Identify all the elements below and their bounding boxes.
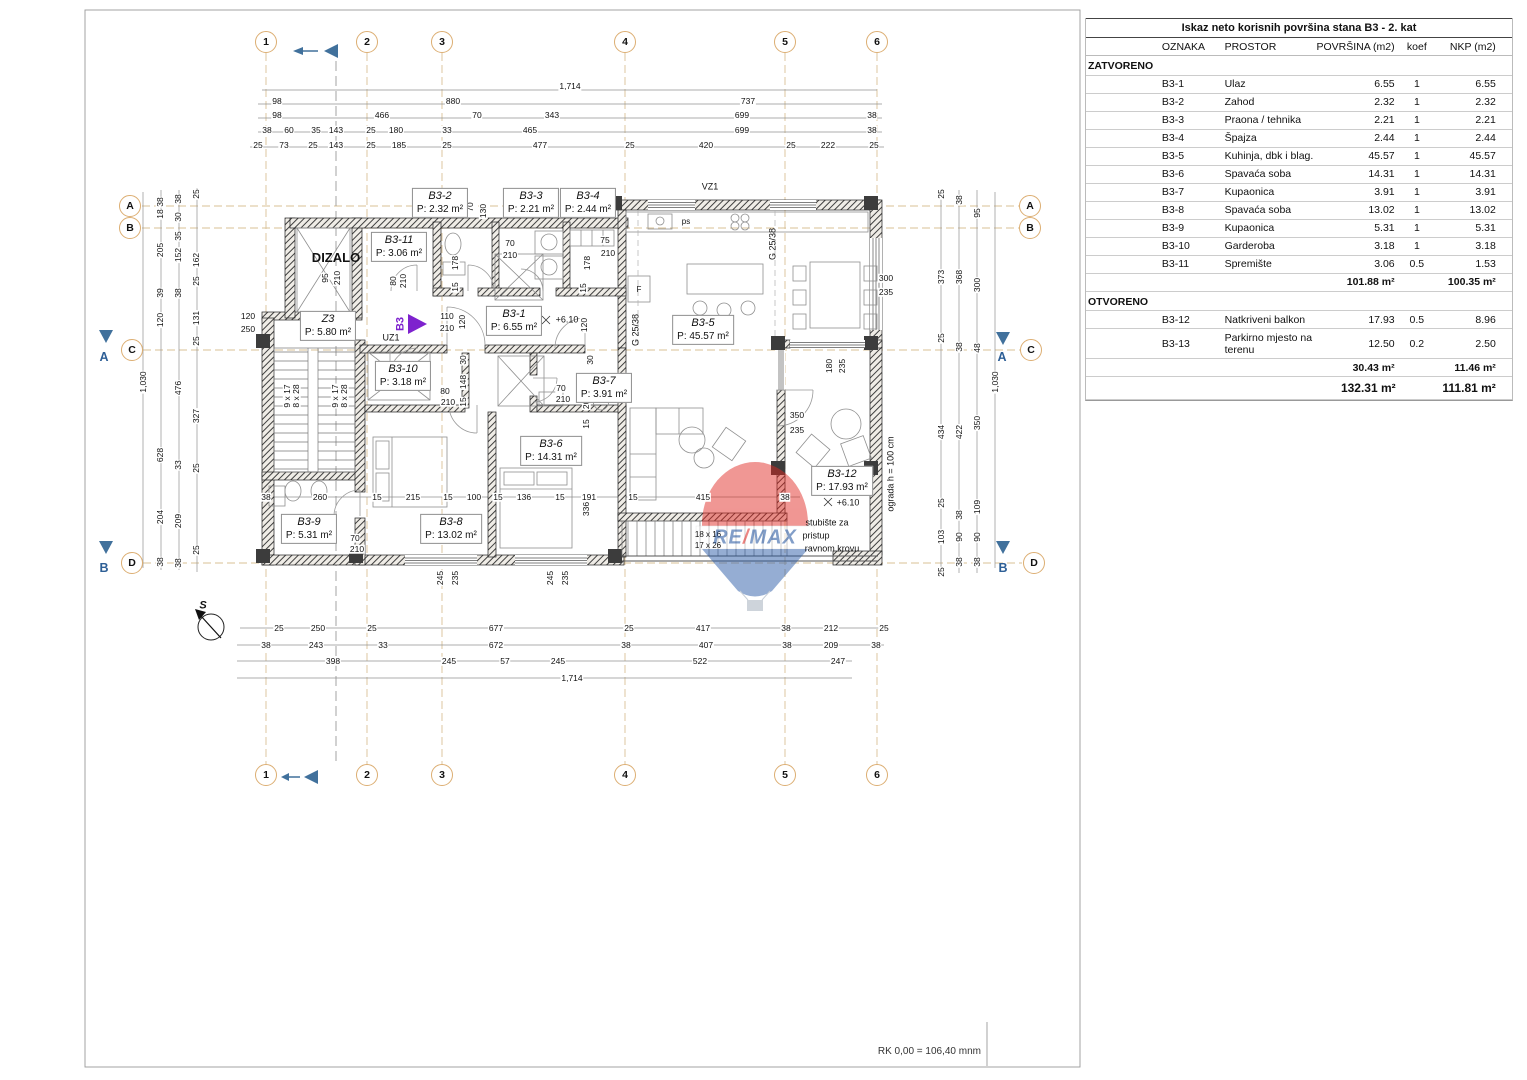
dim-label: 222 — [820, 141, 836, 150]
cell: 6.55 — [1339, 75, 1397, 93]
cell — [1498, 201, 1512, 219]
dim-label: 75 — [599, 236, 610, 245]
dim-label: 162 — [192, 252, 201, 268]
cell: B3-11 — [1160, 255, 1223, 273]
annotation-uz1: UZ1 — [382, 334, 399, 343]
dim-label: 628 — [156, 447, 165, 463]
cell — [1086, 147, 1160, 165]
cell: 1 — [1397, 75, 1437, 93]
room-label-dizalo: DIZALO — [308, 249, 364, 267]
table-row: B3-13Parkirno mjesto na terenu12.500.22.… — [1086, 329, 1512, 359]
table-row: B3-2Zahod2.3212.32 — [1086, 93, 1512, 111]
header-spacer-end — [1498, 38, 1512, 56]
dim-label: 38 — [260, 493, 271, 502]
grid-bubble-A: A — [119, 195, 141, 217]
annotation-b: B — [99, 562, 108, 575]
cell: 3.18 — [1339, 237, 1397, 255]
dim-label: 131 — [192, 310, 201, 326]
dim-label: 8 x 28 — [292, 383, 301, 408]
dim-label: 15 — [442, 493, 453, 502]
cell — [1086, 255, 1160, 273]
dim-label: 38 — [174, 287, 183, 298]
dim-label: 178 — [583, 255, 592, 271]
grid-bubble-D: D — [1023, 552, 1045, 574]
cell: 132.31 m² — [1339, 377, 1397, 400]
dim-label: 120 — [580, 317, 589, 333]
room-area: P: 3.06 m² — [376, 248, 422, 261]
dim-label: 398 — [325, 657, 341, 666]
cell: 14.31 — [1437, 165, 1498, 183]
cell: Kuhinja, dbk i blag. — [1223, 147, 1339, 165]
cell: 8.96 — [1437, 311, 1498, 329]
room-area: P: 45.57 m² — [677, 331, 729, 344]
room-area: P: 3.18 m² — [380, 377, 426, 390]
dim-label: 235 — [561, 570, 570, 586]
section-row-otvoreno: OTVORENO — [1086, 291, 1512, 311]
dim-label: 300 — [973, 277, 982, 293]
table-row: B3-6Spavaća soba14.31114.31 — [1086, 165, 1512, 183]
dim-label: 38 — [156, 196, 165, 207]
dim-label: 417 — [695, 624, 711, 633]
cell: 1 — [1397, 147, 1437, 165]
area-table-grid: OZNAKA PROSTORPOVRŠINA (m2) koef NKP (m2… — [1086, 38, 1512, 400]
dim-label: 699 — [734, 111, 750, 120]
cell — [1086, 93, 1160, 111]
cell — [1498, 311, 1512, 329]
dim-label: 18 — [156, 208, 165, 219]
dim-label: 38 — [260, 641, 271, 650]
cell: 2.50 — [1437, 329, 1498, 359]
dim-label: 260 — [312, 493, 328, 502]
cell — [1498, 147, 1512, 165]
cell: OTVORENO — [1086, 291, 1223, 311]
cell: 5.31 — [1339, 219, 1397, 237]
dim-label: 15 — [492, 493, 503, 502]
dim-label: 90 — [973, 531, 982, 542]
cell: 3.18 — [1437, 237, 1498, 255]
cell — [1086, 165, 1160, 183]
dim-label: 209 — [174, 513, 183, 529]
cell — [1223, 291, 1512, 311]
subtotal-row: 101.88 m²100.35 m² — [1086, 273, 1512, 291]
dim-label: 25 — [623, 624, 634, 633]
room-area: P: 13.02 m² — [425, 530, 477, 543]
col-nkp: NKP (m2) — [1437, 38, 1498, 56]
room-name: B3-6 — [525, 438, 577, 452]
room-label-b3-10: B3-10P: 3.18 m² — [375, 361, 431, 391]
dim-label: 15 — [554, 493, 565, 502]
dim-label: 677 — [488, 624, 504, 633]
dim-label: 204 — [156, 509, 165, 525]
cell — [1498, 183, 1512, 201]
cell: 12.50 — [1339, 329, 1397, 359]
area-table-header-row: OZNAKA PROSTORPOVRŠINA (m2) koef NKP (m2… — [1086, 38, 1512, 56]
room-name: B3-1 — [491, 308, 537, 322]
dim-label: 8 x 28 — [340, 383, 349, 408]
dim-label: 185 — [391, 141, 407, 150]
room-name: Z3 — [305, 313, 351, 327]
dim-label: 25 — [192, 275, 201, 286]
dim-label: 25 — [307, 141, 318, 150]
grid-bubble-4: 4 — [614, 31, 636, 53]
cell: Zahod — [1223, 93, 1339, 111]
cell: Spavaća soba — [1223, 201, 1339, 219]
annotation-pristup: pristup — [802, 532, 829, 541]
dim-label: 210 — [333, 270, 342, 286]
dim-label: 30 — [586, 354, 595, 365]
grid-bubble-2: 2 — [356, 764, 378, 786]
room-area: P: 17.93 m² — [816, 482, 868, 495]
dim-label: 327 — [192, 408, 201, 424]
cell — [1498, 255, 1512, 273]
dim-label: 120 — [240, 312, 256, 321]
cell: Ulaz — [1223, 75, 1339, 93]
grid-bubble-1: 1 — [255, 764, 277, 786]
dim-label: 120 — [156, 312, 165, 328]
cell: 3.06 — [1339, 255, 1397, 273]
room-area: P: 2.44 m² — [565, 204, 611, 217]
dim-label: 210 — [555, 395, 571, 404]
annotation-stubi-te-za: stubište za — [805, 519, 848, 528]
grid-bubble-6: 6 — [866, 764, 888, 786]
grid-bubble-D: D — [121, 552, 143, 574]
cell — [1498, 377, 1512, 400]
dim-label: 109 — [973, 499, 982, 515]
dim-label: 250 — [310, 624, 326, 633]
cell — [1498, 329, 1512, 359]
dim-label: 180 — [388, 126, 404, 135]
room-name: B3-4 — [565, 190, 611, 204]
dim-label: 25 — [937, 188, 946, 199]
cell: 0.2 — [1397, 329, 1437, 359]
dim-label: 205 — [156, 242, 165, 258]
cell — [1086, 201, 1160, 219]
area-table-title: Iskaz neto korisnih površina stana B3 - … — [1086, 18, 1512, 38]
grid-bubble-5: 5 — [774, 31, 796, 53]
cell: Spavaća soba — [1223, 165, 1339, 183]
remax-watermark-text: RE/MAX — [713, 527, 797, 550]
dim-label: 15 — [451, 281, 460, 292]
dim-label: 70 — [349, 534, 360, 543]
cell — [1086, 311, 1160, 329]
room-name: B3-12 — [816, 468, 868, 482]
dim-label: 38 — [955, 194, 964, 205]
cell: 3.91 — [1339, 183, 1397, 201]
dim-label: 434 — [937, 424, 946, 440]
dim-label: 25 — [273, 624, 284, 633]
room-name: B3-3 — [508, 190, 554, 204]
dim-label: 38 — [174, 193, 183, 204]
table-row: B3-10Garderoba3.1813.18 — [1086, 237, 1512, 255]
cell — [1086, 129, 1160, 147]
cell: Parkirno mjesto na terenu — [1223, 329, 1339, 359]
dim-label: 245 — [546, 570, 555, 586]
dim-label: 25 — [441, 141, 452, 150]
table-row: B3-9Kupaonica5.3115.31 — [1086, 219, 1512, 237]
cell: Kupaonica — [1223, 219, 1339, 237]
dim-label: 1,030 — [139, 370, 148, 393]
dim-label: 415 — [695, 493, 711, 502]
dim-label: 95 — [321, 272, 330, 283]
annotation-b3: B3 — [396, 317, 407, 331]
cell — [1086, 183, 1160, 201]
cell: 45.57 — [1339, 147, 1397, 165]
dim-label: 39 — [156, 287, 165, 298]
cell: 1 — [1397, 237, 1437, 255]
annotation-g-25-38: G 25/38 — [632, 314, 641, 346]
cell: B3-7 — [1160, 183, 1223, 201]
table-row: B3-4Špajza2.4412.44 — [1086, 129, 1512, 147]
cell — [1498, 273, 1512, 291]
dim-label: 15 — [579, 282, 588, 293]
dim-label: 247 — [830, 657, 846, 666]
room-label-b3-2: B3-2P: 2.32 m² — [412, 188, 468, 218]
grid-bubble-3: 3 — [431, 764, 453, 786]
cell: Natkriveni balkon — [1223, 311, 1339, 329]
cell — [1498, 359, 1512, 377]
level-reference-note: RK 0,00 = 106,40 mnm — [866, 1046, 981, 1057]
dim-label: 143 — [328, 141, 344, 150]
annotation-ravnom-krovu: ravnom krovu — [805, 545, 860, 554]
dim-label: 25 — [937, 497, 946, 508]
cell: 1.53 — [1437, 255, 1498, 273]
dim-label: 38 — [955, 341, 964, 352]
dim-label: 300 — [878, 274, 894, 283]
header-spacer — [1086, 38, 1160, 56]
grid-bubble-3: 3 — [431, 31, 453, 53]
dim-label: 210 — [399, 273, 408, 289]
dim-label: 38 — [261, 126, 272, 135]
dim-label: 1,030 — [991, 370, 1000, 393]
dim-label: 38 — [973, 556, 982, 567]
dim-label: 1,714 — [558, 82, 581, 91]
cell: B3-3 — [1160, 111, 1223, 129]
total-row: 132.31 m²111.81 m² — [1086, 377, 1512, 400]
dim-label: 25 — [252, 141, 263, 150]
dim-label: 15 — [582, 418, 591, 429]
dim-label: 120 — [458, 314, 467, 330]
dim-label: 98 — [271, 111, 282, 120]
cell — [1498, 93, 1512, 111]
dim-label: 209 — [823, 641, 839, 650]
dim-label: 350 — [973, 415, 982, 431]
cell: 1 — [1397, 165, 1437, 183]
annotation-a: A — [99, 351, 108, 364]
area-table: Iskaz neto korisnih površina stana B3 - … — [1085, 18, 1513, 401]
dim-label: 343 — [544, 111, 560, 120]
cell — [1498, 237, 1512, 255]
dim-label: 243 — [308, 641, 324, 650]
dim-label: 25 — [365, 126, 376, 135]
dim-label: 210 — [502, 251, 518, 260]
room-name: B3-8 — [425, 516, 477, 530]
dim-label: 212 — [823, 624, 839, 633]
grid-bubble-A: A — [1019, 195, 1041, 217]
cell — [1498, 129, 1512, 147]
dim-label: 25 — [192, 335, 201, 346]
dim-label: 245 — [441, 657, 457, 666]
room-label-b3-8: B3-8P: 13.02 m² — [420, 514, 482, 544]
cell: 2.44 — [1339, 129, 1397, 147]
dim-label: 25 — [868, 141, 879, 150]
col-prostor: PROSTOR — [1225, 41, 1277, 53]
dim-label: 368 — [955, 269, 964, 285]
dim-label: 25 — [624, 141, 635, 150]
cell: B3-8 — [1160, 201, 1223, 219]
dim-label: 235 — [789, 426, 805, 435]
dim-label: 33 — [441, 126, 452, 135]
dim-label: 73 — [278, 141, 289, 150]
dim-label: 210 — [600, 249, 616, 258]
annotation-f: F — [637, 286, 642, 294]
dim-label: 103 — [937, 529, 946, 545]
dim-label: 210 — [439, 324, 455, 333]
cell — [1397, 273, 1437, 291]
cell: 13.02 — [1339, 201, 1397, 219]
room-name: B3-7 — [581, 375, 627, 389]
cell: 2.21 — [1437, 111, 1498, 129]
cell: 1 — [1397, 93, 1437, 111]
cell: B3-12 — [1160, 311, 1223, 329]
cell: B3-10 — [1160, 237, 1223, 255]
cell — [1086, 359, 1339, 377]
dim-label: 130 — [479, 203, 488, 219]
cell: B3-9 — [1160, 219, 1223, 237]
dim-label: 180 — [825, 358, 834, 374]
cell — [1498, 165, 1512, 183]
dim-label: 152 — [174, 247, 183, 263]
cell: 30.43 m² — [1339, 359, 1397, 377]
dim-label: 699 — [734, 126, 750, 135]
dim-label: 70 — [555, 384, 566, 393]
cell: 111.81 m² — [1437, 377, 1498, 400]
annotation-b: B — [998, 562, 1007, 575]
dim-label: 672 — [488, 641, 504, 650]
cell: 5.31 — [1437, 219, 1498, 237]
cell — [1498, 111, 1512, 129]
dim-label: 38 — [780, 624, 791, 633]
dim-label: 245 — [436, 570, 445, 586]
grid-bubble-C: C — [1020, 339, 1042, 361]
watermark-max: MAX — [749, 527, 796, 549]
room-label-b3-7: B3-7P: 3.91 m² — [576, 373, 632, 403]
floor-plan-sheet: 123456123456ABCDABCD1,714988807379846670… — [0, 0, 1527, 1080]
annotation--6-10: +6.10 — [837, 499, 860, 508]
annotation-vz1: VZ1 — [702, 183, 719, 192]
dim-label: 35 — [174, 230, 183, 241]
table-row: B3-3Praona / tehnika2.2112.21 — [1086, 111, 1512, 129]
section-row-zatvoreno: ZATVORENO — [1086, 56, 1512, 76]
annotation-g-25-38: G 25/38 — [769, 228, 778, 260]
cell: Praona / tehnika — [1223, 111, 1339, 129]
dim-label: 1,714 — [560, 674, 583, 683]
dim-label: 210 — [349, 545, 365, 554]
cell: B3-4 — [1160, 129, 1223, 147]
annotation-ograda-h-100-cm: ograda h = 100 cm — [887, 436, 896, 511]
dim-label: 15 — [627, 493, 638, 502]
cell: 45.57 — [1437, 147, 1498, 165]
room-label-b3-12: B3-12P: 17.93 m² — [811, 466, 873, 496]
grid-bubble-B: B — [1019, 217, 1041, 239]
dim-label: 25 — [937, 566, 946, 577]
cell: 0.5 — [1397, 311, 1437, 329]
room-label-b3-11: B3-11P: 3.06 m² — [371, 232, 427, 262]
dim-label: 407 — [698, 641, 714, 650]
dim-label: 235 — [878, 288, 894, 297]
col-prostor-povrsina: PROSTORPOVRŠINA (m2) — [1223, 38, 1397, 56]
dim-label: 235 — [838, 358, 847, 374]
cell: 100.35 m² — [1437, 273, 1498, 291]
dim-label: 178 — [451, 255, 460, 271]
cell — [1086, 377, 1339, 400]
room-name: DIZALO — [312, 250, 360, 266]
grid-bubble-B: B — [119, 217, 141, 239]
room-area: P: 6.55 m² — [491, 322, 537, 335]
cell: B3-1 — [1160, 75, 1223, 93]
cell: Špajza — [1223, 129, 1339, 147]
room-name: B3-9 — [286, 516, 332, 530]
dim-label: 148 — [459, 374, 468, 390]
dim-label: 15 — [371, 493, 382, 502]
subtotal-row: 30.43 m²11.46 m² — [1086, 359, 1512, 377]
cell: 11.46 m² — [1437, 359, 1498, 377]
dim-label: 95 — [973, 207, 982, 218]
dim-label: 38 — [781, 641, 792, 650]
cell: ZATVORENO — [1086, 56, 1223, 76]
dim-label: 33 — [377, 641, 388, 650]
room-area: P: 2.21 m² — [508, 204, 554, 217]
table-row: B3-5Kuhinja, dbk i blag.45.57145.57 — [1086, 147, 1512, 165]
dim-label: 38 — [156, 556, 165, 567]
dim-label: 70 — [504, 239, 515, 248]
dim-label: 373 — [937, 269, 946, 285]
dim-label: 25 — [192, 462, 201, 473]
dim-label: 57 — [499, 657, 510, 666]
cell: 1 — [1397, 111, 1437, 129]
dim-label: 245 — [550, 657, 566, 666]
cell: B3-2 — [1160, 93, 1223, 111]
dim-label: 136 — [516, 493, 532, 502]
cell: 1 — [1397, 219, 1437, 237]
cell: 1 — [1397, 183, 1437, 201]
cell: 1 — [1397, 201, 1437, 219]
dim-label: 465 — [522, 126, 538, 135]
room-area: P: 14.31 m² — [525, 452, 577, 465]
dim-label: 48 — [973, 342, 982, 353]
grid-bubble-6: 6 — [866, 31, 888, 53]
room-area: P: 5.80 m² — [305, 327, 351, 340]
cell — [1086, 111, 1160, 129]
dim-label: 38 — [866, 126, 877, 135]
dim-label: 25 — [878, 624, 889, 633]
watermark-re: RE — [713, 527, 743, 549]
dim-label: 35 — [310, 126, 321, 135]
table-row: B3-12Natkriveni balkon17.930.58.96 — [1086, 311, 1512, 329]
col-oznaka: OZNAKA — [1160, 38, 1223, 56]
dim-label: 420 — [698, 141, 714, 150]
room-label-z3: Z3P: 5.80 m² — [300, 311, 356, 341]
room-area: P: 5.31 m² — [286, 530, 332, 543]
cell: B3-6 — [1160, 165, 1223, 183]
table-row: B3-1Ulaz6.5516.55 — [1086, 75, 1512, 93]
dim-label: 38 — [866, 111, 877, 120]
cell: 17.93 — [1339, 311, 1397, 329]
dim-label: 15 — [459, 396, 468, 407]
cell — [1086, 75, 1160, 93]
room-label-b3-9: B3-9P: 5.31 m² — [281, 514, 337, 544]
dim-label: 60 — [283, 126, 294, 135]
annotation-s: S — [199, 601, 206, 612]
